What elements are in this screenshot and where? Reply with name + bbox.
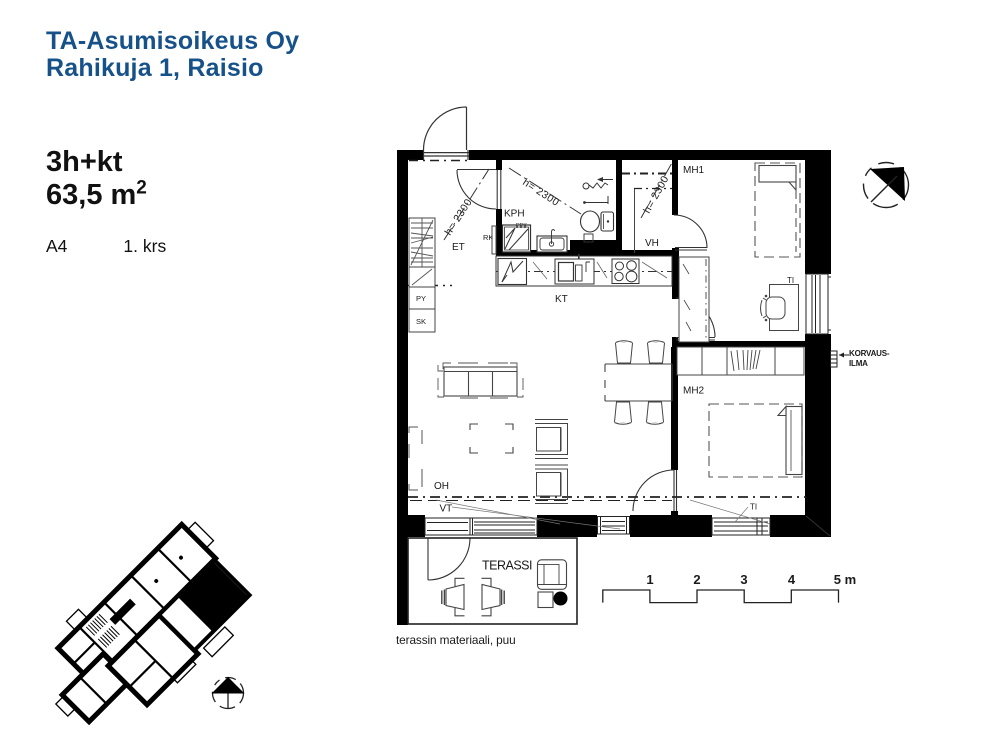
svg-text:TI: TI bbox=[787, 276, 794, 285]
svg-text:MH1: MH1 bbox=[683, 165, 705, 176]
svg-text:3: 3 bbox=[740, 572, 747, 587]
svg-text:KPH: KPH bbox=[504, 209, 525, 220]
svg-text:VH: VH bbox=[645, 238, 659, 249]
svg-text:VT: VT bbox=[440, 504, 453, 515]
svg-text:terassin materiaali, puu: terassin materiaali, puu bbox=[396, 633, 516, 647]
svg-text:TERASSI: TERASSI bbox=[482, 559, 532, 573]
svg-text:h= 2300: h= 2300 bbox=[442, 197, 474, 238]
svg-text:h= 2300: h= 2300 bbox=[520, 176, 561, 208]
svg-text:ILMA: ILMA bbox=[849, 359, 868, 368]
svg-text:1: 1 bbox=[646, 572, 653, 587]
svg-text:ET: ET bbox=[452, 242, 465, 253]
svg-text:OH: OH bbox=[434, 481, 449, 492]
svg-text:5 m: 5 m bbox=[834, 572, 856, 587]
svg-text:PY: PY bbox=[416, 294, 426, 303]
svg-text:MH2: MH2 bbox=[683, 386, 705, 397]
svg-text:TI: TI bbox=[750, 503, 757, 512]
svg-text:h= 2300: h= 2300 bbox=[641, 174, 671, 216]
svg-text:KORVAUS-: KORVAUS- bbox=[849, 349, 890, 358]
svg-text:2: 2 bbox=[693, 572, 700, 587]
svg-text:KT: KT bbox=[555, 294, 568, 305]
svg-text:SK: SK bbox=[416, 317, 426, 326]
svg-text:4: 4 bbox=[788, 572, 796, 587]
